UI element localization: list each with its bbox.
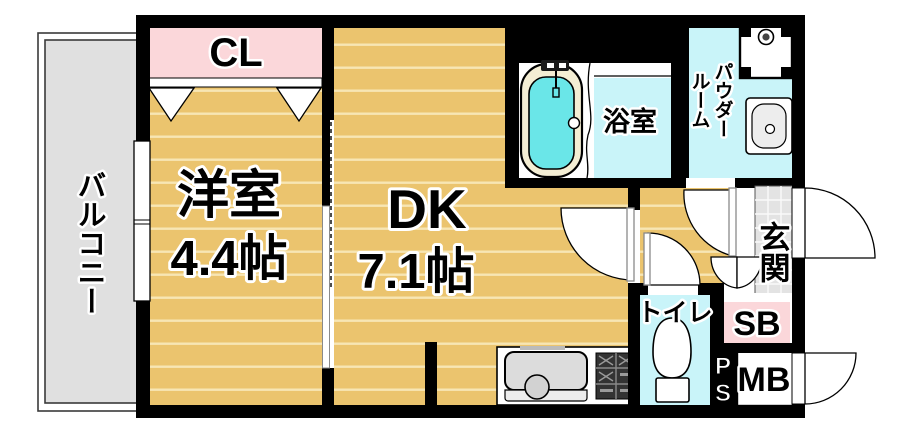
- washbasin-icon: [746, 98, 792, 154]
- western-room-size: 4.4帖: [170, 232, 287, 286]
- toilet-door-leaf: [644, 233, 650, 285]
- balcony-window: [134, 141, 150, 301]
- corridor-door-leaf: [627, 208, 634, 281]
- kitchen-sink-icon: [505, 352, 587, 401]
- kitchen-counter: [497, 346, 636, 405]
- bathroom-label: 浴室: [603, 106, 657, 137]
- washing-machine-pan-icon: [740, 26, 792, 78]
- dk-size: 7.1帖: [357, 245, 474, 299]
- powder-room-label-left: ルーム: [689, 72, 710, 129]
- shoe-box-gap: [724, 293, 792, 302]
- powder-door-leaf: [729, 188, 736, 256]
- entrance-label: 玄関: [755, 221, 790, 283]
- front-door-leaf: [792, 188, 805, 258]
- closet-label: CL: [209, 31, 262, 75]
- western-room-label: 洋室: [177, 167, 281, 225]
- meter-box-door-leaf: [792, 353, 805, 404]
- pipe-space-label: PS: [710, 353, 737, 407]
- toilet-bowl-icon: [653, 318, 691, 402]
- floor-plan-drawing: バルコニー CL 洋室 4.4帖 DK 7.1帖 浴室 パウダー ルーム 玄関 …: [0, 0, 919, 433]
- bath-door-knob-icon: [569, 118, 580, 129]
- dk-label: DK: [387, 178, 467, 240]
- floor-plan: バルコニー CL 洋室 4.4帖 DK 7.1帖 浴室 パウダー ルーム 玄関 …: [0, 0, 919, 433]
- room-bathroom: [505, 15, 689, 188]
- sliding-door: [322, 120, 334, 368]
- shoe-box-label: SB: [733, 305, 780, 343]
- powder-room-label-right: パウダー: [712, 62, 734, 138]
- bathtub-icon: [521, 60, 582, 177]
- balcony-label: バルコニー: [73, 171, 106, 316]
- powder-door-gap: [686, 178, 735, 188]
- toilet-label: トイレ: [637, 299, 712, 327]
- meter-box-label: MB: [738, 361, 791, 399]
